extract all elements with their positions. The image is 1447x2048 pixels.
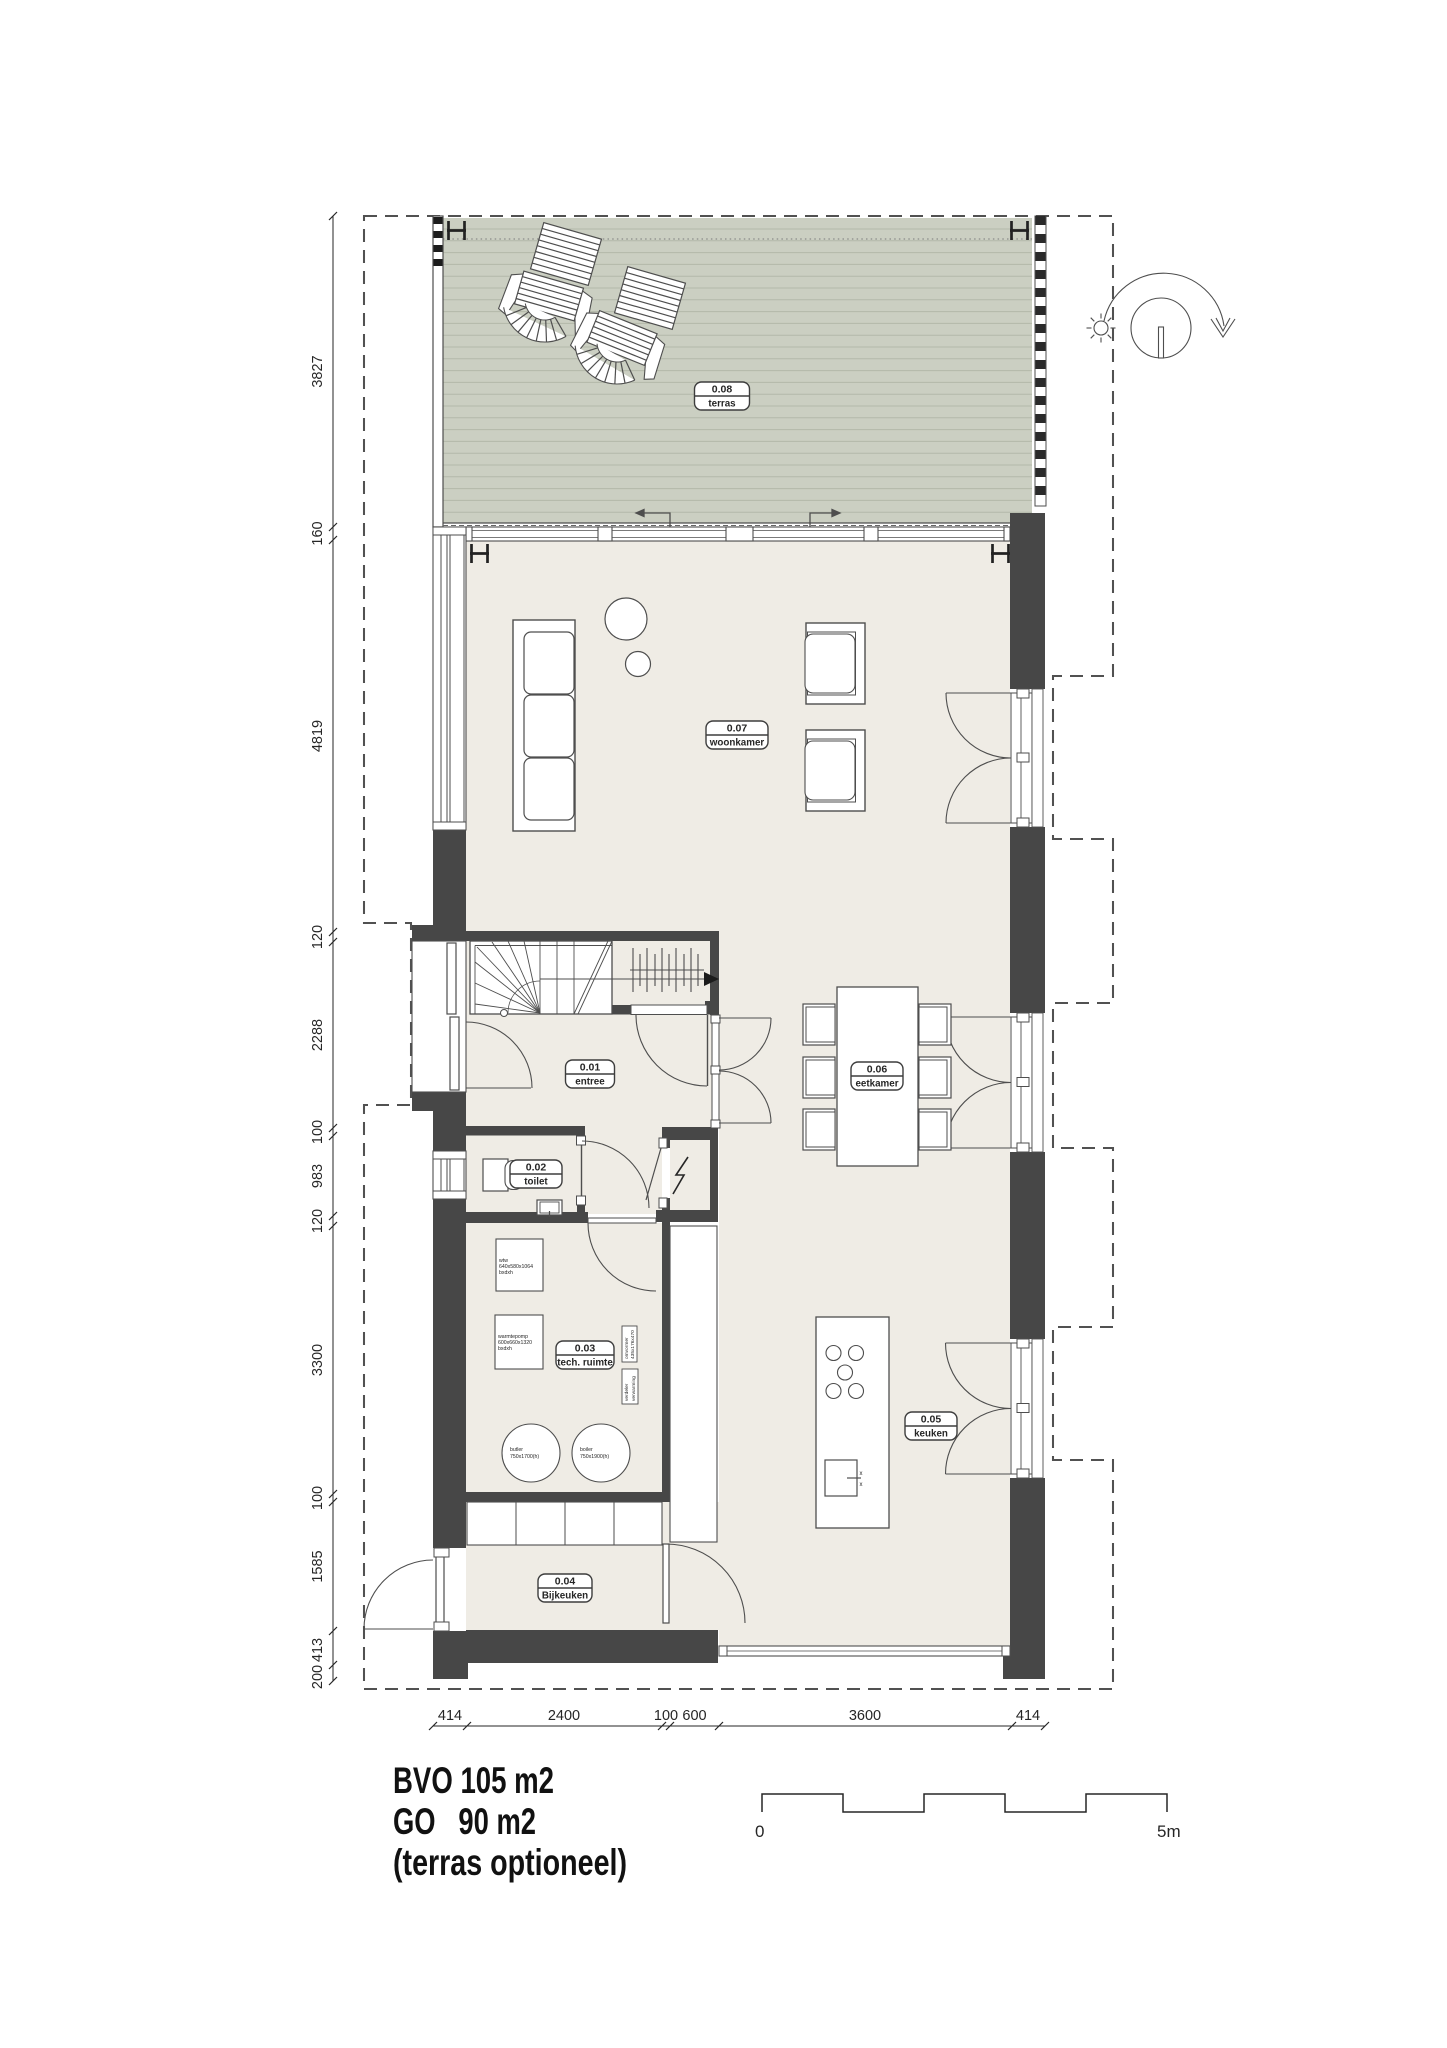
svg-text:414: 414 <box>1016 1708 1040 1724</box>
svg-text:boiler: boiler <box>580 1447 593 1453</box>
svg-text:woonkamer: woonkamer <box>709 738 765 749</box>
svg-text:bxdxh: bxdxh <box>498 1346 512 1352</box>
svg-text:413: 413 <box>310 1638 326 1662</box>
svg-text:0.03: 0.03 <box>575 1343 596 1355</box>
svg-text:100: 100 <box>310 1120 326 1144</box>
svg-text:4819: 4819 <box>310 720 326 752</box>
svg-text:(terras optioneel): (terras optioneel) <box>393 1842 627 1883</box>
svg-text:verdeler: verdeler <box>624 1383 630 1401</box>
svg-text:0.04: 0.04 <box>555 1576 576 1588</box>
svg-text:750x1700(h): 750x1700(h) <box>510 1454 539 1460</box>
svg-text:2288: 2288 <box>310 1019 326 1051</box>
svg-text:0.02: 0.02 <box>526 1162 547 1174</box>
svg-text:x: x <box>860 1482 863 1488</box>
svg-text:750x1900(h): 750x1900(h) <box>580 1454 609 1460</box>
svg-text:3827: 3827 <box>310 355 326 387</box>
svg-text:414: 414 <box>438 1708 462 1724</box>
svg-text:120: 120 <box>310 1209 326 1233</box>
svg-text:0.05: 0.05 <box>921 1414 942 1426</box>
svg-text:200: 200 <box>310 1665 326 1689</box>
svg-text:3600: 3600 <box>849 1708 881 1724</box>
svg-text:983: 983 <box>310 1164 326 1188</box>
svg-text:terras: terras <box>708 399 736 410</box>
svg-text:eetkamer: eetkamer <box>855 1079 898 1090</box>
svg-text:5m: 5m <box>1157 1822 1181 1841</box>
svg-text:100: 100 <box>310 1486 326 1510</box>
svg-text:verwarming: verwarming <box>631 1376 637 1401</box>
svg-text:BVO 105 m2: BVO 105 m2 <box>393 1760 554 1801</box>
svg-text:x: x <box>860 1471 863 1477</box>
svg-text:omvormer: omvormer <box>624 1337 630 1359</box>
svg-text:0.01: 0.01 <box>580 1062 601 1074</box>
svg-text:0.07: 0.07 <box>727 723 748 735</box>
svg-text:butler: butler <box>510 1447 523 1453</box>
svg-text:3300: 3300 <box>310 1344 326 1376</box>
svg-text:keuken: keuken <box>914 1429 948 1440</box>
svg-text:120: 120 <box>310 925 326 949</box>
svg-text:0.06: 0.06 <box>867 1064 888 1076</box>
svg-text:0.08: 0.08 <box>712 384 733 396</box>
svg-text:435x176x470: 435x176x470 <box>630 1330 636 1359</box>
svg-text:entree: entree <box>575 1077 605 1088</box>
svg-text:160: 160 <box>310 521 326 545</box>
svg-text:1585: 1585 <box>310 1550 326 1582</box>
svg-text:Bijkeuken: Bijkeuken <box>542 1591 588 1602</box>
svg-text:0: 0 <box>755 1822 764 1841</box>
svg-text:bxdxh: bxdxh <box>499 1270 513 1276</box>
svg-text:100: 100 <box>654 1708 678 1724</box>
svg-text:toilet: toilet <box>524 1177 548 1188</box>
svg-text:tech. ruimte: tech. ruimte <box>557 1358 613 1369</box>
svg-text:GO 90 m2: GO 90 m2 <box>393 1801 536 1842</box>
svg-text:2400: 2400 <box>548 1708 580 1724</box>
svg-text:600: 600 <box>682 1708 706 1724</box>
